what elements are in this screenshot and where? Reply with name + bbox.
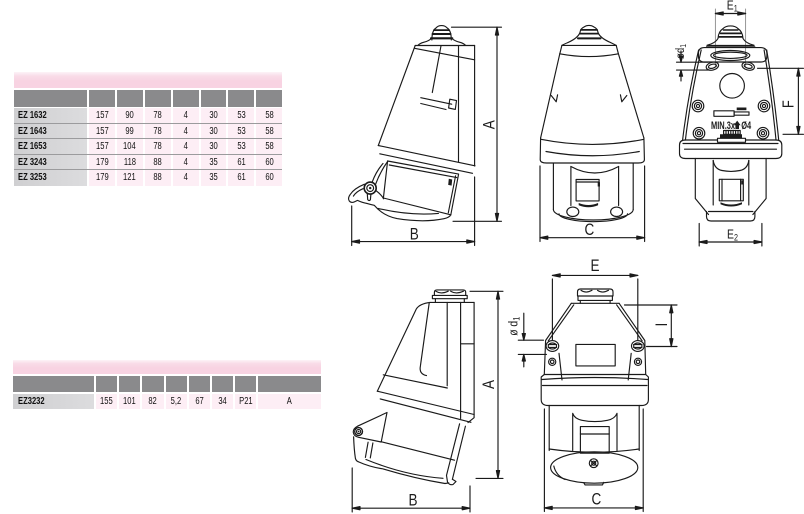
svg-text:ø d1: ø d1 (507, 316, 522, 335)
svg-text:B: B (410, 225, 419, 244)
svg-text:Ø4: Ø4 (741, 118, 752, 131)
svg-text:I: I (653, 323, 672, 327)
svg-text:ød1: ød1 (674, 44, 688, 59)
svg-text:C: C (592, 490, 602, 509)
svg-text:E1: E1 (727, 0, 738, 14)
svg-text:A: A (480, 119, 499, 129)
svg-text:MIN.3x: MIN.3x (711, 118, 736, 131)
svg-text:B: B (409, 491, 418, 510)
svg-text:E2: E2 (727, 228, 738, 243)
svg-text:F: F (780, 100, 797, 108)
svg-text:E: E (591, 257, 600, 276)
svg-text:A: A (480, 379, 499, 389)
svg-text:C: C (585, 221, 595, 240)
